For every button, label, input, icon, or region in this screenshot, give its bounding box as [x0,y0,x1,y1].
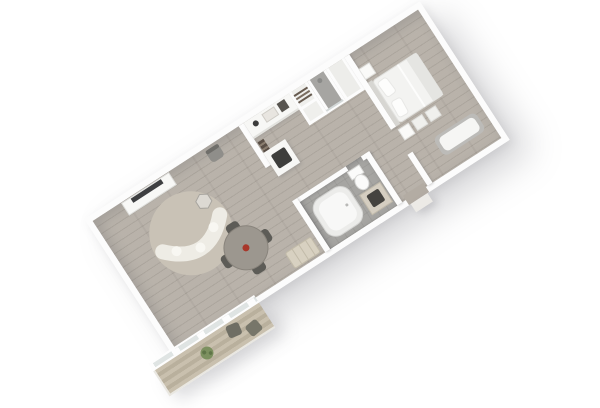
wood-sideboard [285,237,320,268]
foot-ottoman [412,115,428,131]
floorplan-stage [0,0,600,400]
foot-ottoman [425,106,441,122]
apartment-unit [84,1,509,357]
luggage-rack-shelves [294,87,313,104]
toilet [347,165,372,193]
desk-chair [205,143,225,163]
kitchen-appliances [251,99,290,129]
unit-outer-walls [84,1,509,357]
shower-fittings [309,74,343,112]
deck-chair [225,322,243,339]
nightstand [359,63,376,80]
furniture-layer [59,0,540,408]
nightstand [398,123,415,140]
deck-chair [244,318,263,337]
potted-plant [198,344,216,362]
bathtub [309,182,368,241]
chaise-lounge [433,111,487,157]
